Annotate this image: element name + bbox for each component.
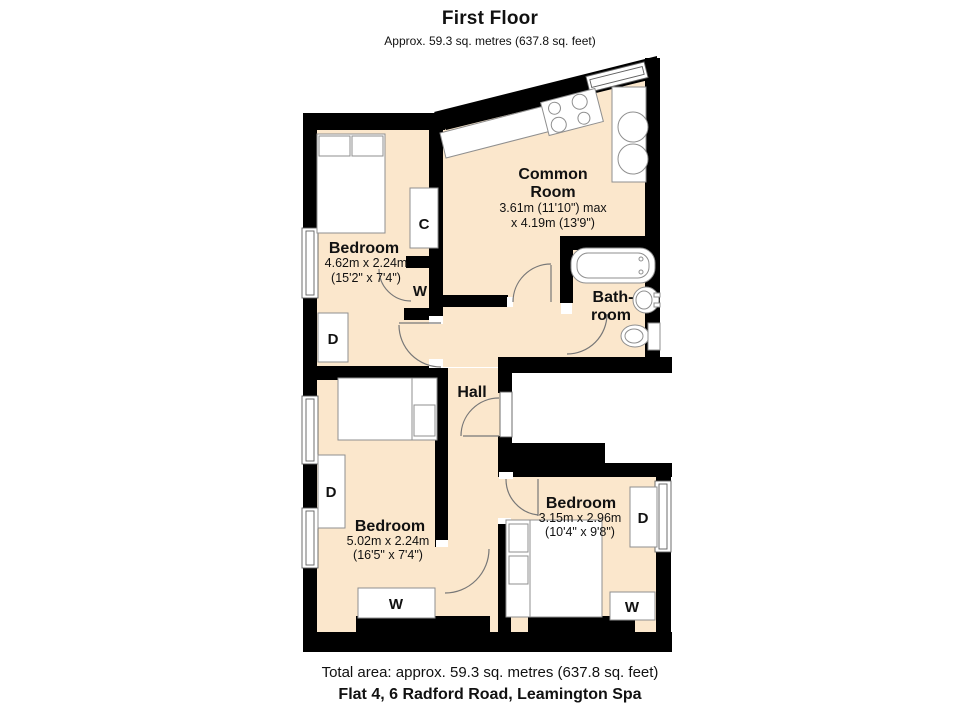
sink-icon	[633, 287, 660, 313]
wardrobe-letter: W	[413, 283, 428, 300]
wall-segment	[356, 616, 490, 634]
room-dims-bedroom2-2: (16'5" x 7'4")	[353, 548, 423, 562]
cupboard-letter: C	[419, 216, 430, 233]
wardrobe-letter: W	[389, 596, 404, 613]
bed-icon	[338, 378, 437, 440]
drawers-letter: D	[328, 331, 339, 348]
wall-segment	[303, 113, 317, 652]
total-area-text: Total area: approx. 59.3 sq. metres (637…	[0, 664, 980, 681]
wall-cap	[561, 303, 572, 314]
room-dims-bedroom3: 3.15m x 2.96m	[539, 511, 622, 525]
room-label-bathroom-2: room	[591, 307, 631, 324]
wall-cap	[499, 472, 513, 479]
wardrobe-letter: W	[625, 599, 640, 616]
drawers-letter: D	[638, 510, 649, 527]
wall-cap	[507, 297, 513, 307]
room-dims-common-room-2: x 4.19m (13'9")	[511, 216, 595, 230]
room-label-common-room: Common	[518, 166, 587, 183]
room-label-bedroom3: Bedroom	[546, 495, 616, 512]
wall-segment	[443, 295, 508, 307]
wall-segment	[498, 357, 672, 373]
floorplan-page: First Floor Approx. 59.3 sq. metres (637…	[0, 0, 980, 712]
wall-segment	[560, 463, 672, 477]
sink-bowls-icon	[612, 87, 648, 182]
room-dims-bedroom2: 5.02m x 2.24m	[347, 534, 430, 548]
page-subtitle: Approx. 59.3 sq. metres (637.8 sq. feet)	[0, 34, 980, 48]
page-title: First Floor	[0, 8, 980, 30]
room-dims-bedroom1-2: (15'2" x 7'4")	[331, 271, 401, 285]
room-dims-bedroom3-2: (10'4" x 9'8")	[545, 525, 615, 539]
room-label-common-room-2: Room	[530, 184, 575, 201]
drawers-letter: D	[326, 484, 337, 501]
address-text: Flat 4, 6 Radford Road, Leamington Spa	[0, 686, 980, 704]
wall-segment	[303, 113, 445, 130]
room-label-bedroom2: Bedroom	[355, 518, 425, 535]
room-label-bedroom1: Bedroom	[329, 240, 399, 257]
room-label-hall: Hall	[457, 384, 486, 401]
entrance-door-sill	[500, 392, 512, 437]
room-dims-bedroom1: 4.62m x 2.24m	[325, 256, 408, 270]
wall-segment	[303, 632, 672, 652]
bed-icon	[317, 134, 385, 233]
wall-segment	[498, 373, 512, 393]
room-label-bathroom: Bath-	[593, 289, 634, 306]
window-icon	[302, 228, 318, 298]
wall-segment	[560, 243, 573, 303]
window-icon	[302, 508, 318, 568]
window-icon	[302, 396, 318, 464]
room-dims-common-room: 3.61m (11'10") max	[499, 201, 607, 215]
bathtub-icon	[571, 248, 655, 283]
floorplan-svg: Common Room 3.61m (11'10") max x 4.19m (…	[0, 0, 980, 712]
wall-segment	[406, 256, 443, 268]
wall-cap	[436, 540, 448, 547]
